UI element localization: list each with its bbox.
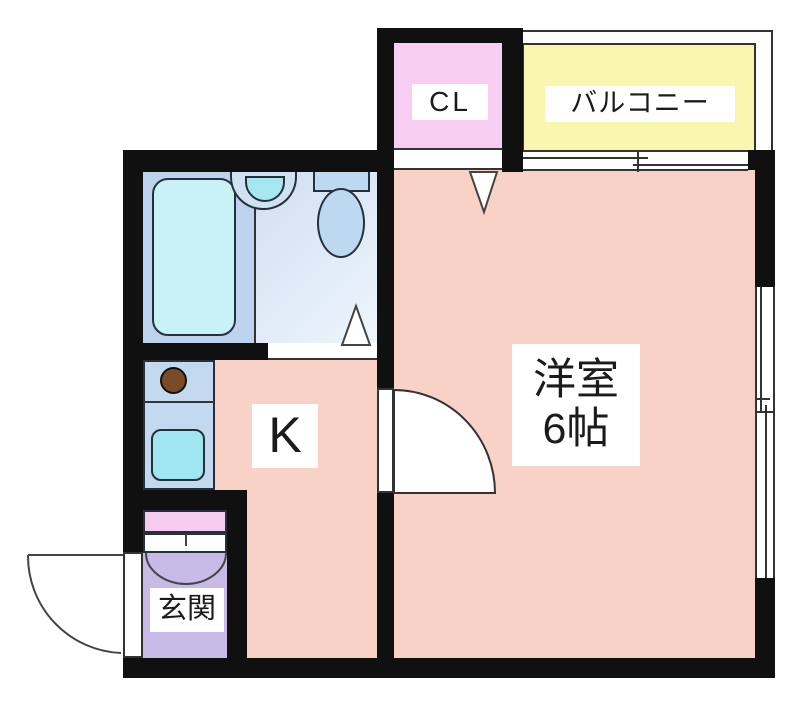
western-room-size: 6帖 xyxy=(543,405,610,454)
entrance-label-text: 玄関 xyxy=(158,593,216,626)
balcony-label: バルコニー xyxy=(545,86,735,122)
closet-opening xyxy=(394,152,502,170)
westernroom-window xyxy=(755,287,775,578)
floorplan: CL バルコニー 洋室 6帖 K 玄関 xyxy=(0,0,800,704)
wall-kitchen-westernroom-upper xyxy=(377,172,394,388)
westernroom-door-leaf xyxy=(377,388,394,493)
balcony-sliding-door-zone xyxy=(523,152,748,170)
wall-right-lower xyxy=(755,578,775,678)
wall-kitchen-westernroom-lower xyxy=(377,493,394,678)
kitchen-sink xyxy=(151,429,205,481)
wall-closet-balcony xyxy=(502,28,523,172)
shoe-cabinet-doors xyxy=(143,533,227,553)
toilet-bowl xyxy=(317,188,365,258)
kitchen-label: K xyxy=(252,404,318,468)
bathtub xyxy=(152,178,236,336)
bathroom-door-opening xyxy=(268,343,377,360)
front-door-swing-arc xyxy=(28,555,121,653)
wall-balcony-right-stub xyxy=(748,150,775,170)
wall-bottom xyxy=(123,658,775,678)
closet-label-text: CL xyxy=(429,86,471,118)
entrance-label: 玄関 xyxy=(150,588,224,632)
western-room-name: 洋室 xyxy=(533,356,619,405)
wall-entrance-right xyxy=(227,490,247,678)
closet-label: CL xyxy=(412,84,488,120)
wall-right-upper xyxy=(755,150,775,287)
counter-divider xyxy=(143,401,215,403)
kitchen-label-text: K xyxy=(268,407,301,465)
shoe-cabinet xyxy=(143,510,227,533)
wall-bath-bottom xyxy=(123,343,268,360)
stove-burner-icon xyxy=(160,367,187,394)
front-door-leaf xyxy=(123,552,143,658)
wall-bath-top xyxy=(123,150,394,172)
balcony-label-text: バルコニー xyxy=(570,88,709,119)
western-room-label: 洋室 6帖 xyxy=(512,344,640,466)
